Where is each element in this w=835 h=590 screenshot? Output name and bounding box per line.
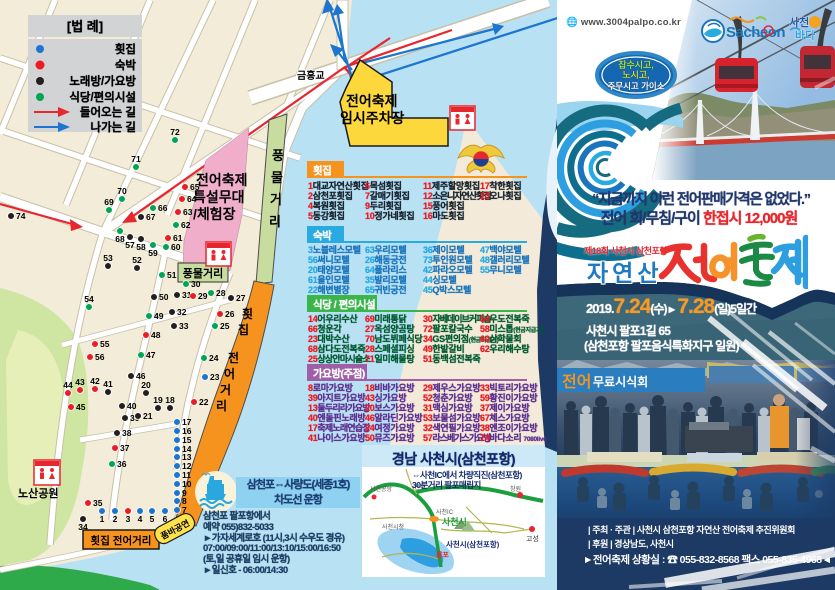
svg-text:48: 48 (151, 330, 161, 340)
svg-text:사천시: 사천시 (442, 516, 467, 527)
svg-text:66: 66 (158, 203, 168, 213)
svg-text:65: 65 (190, 182, 200, 192)
svg-text:사천시청: 사천시청 (382, 523, 404, 531)
svg-text:74: 74 (16, 211, 26, 221)
svg-text:물: 물 (271, 170, 283, 185)
svg-text:임시주차장: 임시주차장 (340, 110, 405, 126)
svg-text:68: 68 (115, 234, 125, 244)
svg-text:5: 5 (150, 514, 155, 524)
svg-text:집: 집 (238, 322, 249, 337)
svg-text:43: 43 (75, 377, 85, 387)
svg-text:고성: 고성 (526, 534, 539, 543)
svg-text:32: 32 (177, 307, 187, 317)
svg-text:19: 19 (153, 395, 163, 405)
svg-text:59: 59 (148, 248, 158, 258)
svg-text:51: 51 (167, 270, 177, 280)
svg-text:60: 60 (171, 242, 181, 252)
svg-text:2: 2 (113, 514, 118, 524)
svg-text:어: 어 (224, 366, 235, 381)
svg-text:72: 72 (170, 127, 180, 137)
svg-text:36: 36 (117, 459, 127, 469)
svg-text:47: 47 (146, 350, 156, 360)
svg-text:28: 28 (216, 288, 226, 298)
svg-text:29: 29 (198, 291, 208, 301)
svg-text:3: 3 (126, 514, 131, 524)
svg-text:49: 49 (154, 311, 164, 321)
svg-text:4: 4 (138, 514, 143, 524)
svg-text:25: 25 (220, 321, 230, 331)
svg-text:57: 57 (125, 240, 135, 250)
svg-text:22: 22 (199, 397, 209, 407)
svg-text:거: 거 (220, 382, 231, 397)
svg-text:37: 37 (120, 443, 130, 453)
svg-text:63: 63 (183, 207, 193, 217)
svg-text:횟집 전어거리: 횟집 전어거리 (91, 534, 152, 547)
svg-text:23: 23 (210, 372, 220, 382)
svg-text:41: 41 (103, 379, 113, 389)
svg-text:[법 례]: [법 례] (67, 19, 103, 34)
svg-text:숙박: 숙박 (115, 58, 137, 72)
svg-text:50: 50 (159, 292, 169, 302)
svg-text:53: 53 (103, 253, 113, 263)
svg-text:54: 54 (84, 294, 94, 304)
svg-text:38: 38 (122, 428, 132, 438)
svg-text:40: 40 (127, 401, 137, 411)
svg-text:들어오는 길: 들어오는 길 (80, 105, 136, 119)
svg-text:30: 30 (191, 279, 201, 289)
svg-text:전어축제: 전어축제 (346, 93, 398, 109)
svg-text:거: 거 (270, 192, 282, 207)
svg-text:27: 27 (236, 293, 246, 303)
svg-text:풍물거리: 풍물거리 (183, 266, 223, 280)
svg-text:식당/편의시설: 식당/편의시설 (69, 90, 136, 104)
svg-text:56: 56 (95, 352, 105, 362)
svg-text:7: 7 (182, 505, 187, 515)
svg-text:횟: 횟 (242, 306, 253, 321)
svg-text:리: 리 (216, 398, 227, 413)
svg-text:34: 34 (78, 522, 88, 532)
svg-text:26: 26 (225, 309, 235, 319)
svg-text:6: 6 (163, 514, 168, 524)
svg-text:노래방/가요방: 노래방/가요방 (69, 74, 136, 88)
svg-text:44: 44 (63, 380, 73, 390)
svg-text:58: 58 (136, 242, 146, 252)
svg-text:특설무대: 특설무대 (193, 189, 245, 205)
svg-text:70: 70 (117, 186, 127, 196)
svg-text:55: 55 (100, 339, 110, 349)
svg-text:팔포: 팔포 (436, 550, 449, 559)
svg-text:노산공원: 노산공원 (18, 486, 58, 500)
svg-text:/체험장: /체험장 (193, 206, 236, 222)
svg-text:62: 62 (181, 220, 191, 230)
svg-text:사천시(삼천포항): 사천시(삼천포항) (446, 539, 500, 549)
svg-text:사천공항: 사천공항 (370, 485, 393, 493)
svg-text:67: 67 (146, 212, 156, 222)
svg-text:사천IC: 사천IC (436, 508, 454, 516)
svg-text:금홍교: 금홍교 (297, 69, 325, 82)
svg-text:42: 42 (90, 376, 100, 386)
svg-text:전어축제: 전어축제 (196, 172, 248, 188)
svg-text:45: 45 (76, 402, 86, 412)
svg-text:1: 1 (100, 514, 105, 524)
svg-text:18: 18 (165, 395, 175, 405)
svg-text:69: 69 (104, 197, 114, 207)
svg-text:21: 21 (143, 411, 153, 421)
svg-text:33: 33 (179, 321, 189, 331)
svg-text:풍: 풍 (272, 148, 284, 163)
svg-text:리: 리 (269, 214, 281, 229)
svg-text:71: 71 (131, 154, 141, 164)
svg-text:20: 20 (141, 380, 151, 390)
svg-text:전: 전 (228, 350, 239, 365)
svg-text:24: 24 (209, 353, 219, 363)
svg-text:52: 52 (132, 255, 142, 265)
svg-text:횟집: 횟집 (115, 42, 136, 56)
svg-text:35: 35 (93, 498, 103, 508)
svg-text:나가는 길: 나가는 길 (90, 120, 136, 134)
svg-text:64: 64 (187, 194, 197, 204)
